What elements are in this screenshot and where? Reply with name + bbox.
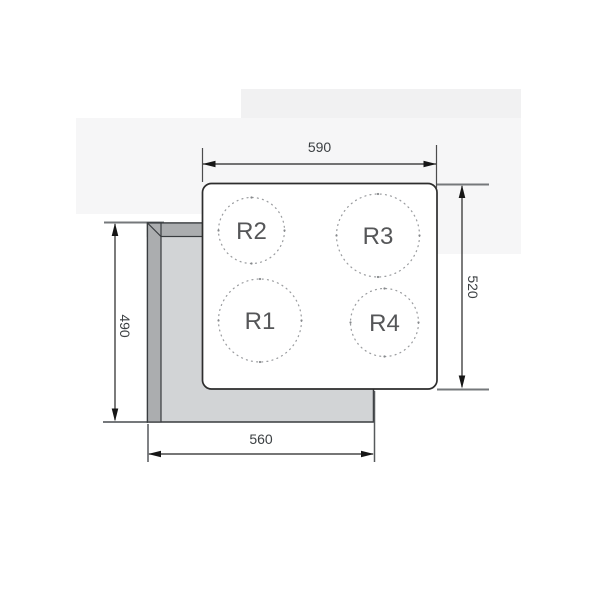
burner-label-r4: R4 [369,310,400,337]
dim-right-label: 520 [465,275,481,299]
dim-top-label: 590 [308,139,332,155]
dim-left-arrow-bottom-icon [112,409,119,422]
burner-label-r1: R1 [245,308,276,335]
dim-left-label: 490 [117,314,133,338]
dim-bottom-label: 560 [249,431,273,447]
dim-bottom-arrow-right-icon [361,451,374,458]
dim-right-arrow-bottom-icon [459,376,466,389]
worktop-rim-left [148,223,162,422]
burner-label-r3: R3 [363,223,394,250]
cooktop-installation-diagram: R2 R3 R1 R4 590 520 490 560 [0,0,600,600]
cooktop-panel [203,184,438,390]
background-artifact-top [241,89,521,118]
diagram-canvas: R2 R3 R1 R4 590 520 490 560 [0,0,600,600]
dim-bottom-arrow-left-icon [148,451,161,458]
burner-label-r2: R2 [236,218,267,245]
dimension-left: 490 [112,223,133,422]
dim-left-arrow-top-icon [112,223,119,236]
